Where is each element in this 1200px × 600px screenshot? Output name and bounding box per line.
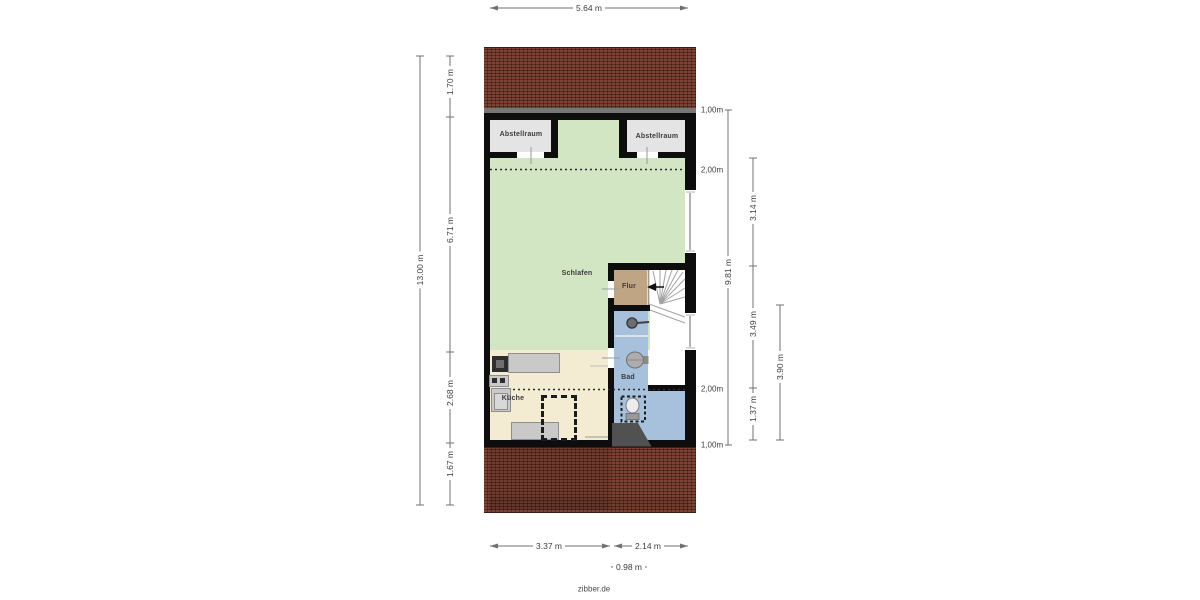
dim-left-2: 6.71 m — [445, 214, 455, 246]
floorplan-canvas: Abstellraum Abstellraum Schlafen Flur Ba… — [0, 0, 1200, 600]
dim-right-seg-1: 3.14 m — [748, 192, 758, 224]
dim-left-3: 2.68 m — [445, 377, 455, 409]
room-label-kueche: Küche — [495, 395, 531, 402]
stair-void-dashed-outline — [541, 395, 577, 441]
plan-graphics — [0, 0, 1200, 600]
height-mark-3: 2,00m — [699, 385, 725, 394]
washbasin-icon — [627, 352, 649, 368]
dim-height-total: 13.00 m — [415, 252, 425, 289]
room-label-abstellraum-right: Abstellraum — [629, 133, 685, 140]
window-glazing-lower — [686, 315, 695, 348]
height-mark-2: 2,00m — [699, 166, 725, 175]
dim-right-span: 9.81 m — [723, 256, 733, 288]
height-mark-1: 1,00m — [699, 106, 725, 115]
window-glazing-upper — [686, 192, 695, 251]
dim-bottom-small: 0.98 m — [613, 562, 645, 572]
room-label-schlafen: Schlafen — [547, 270, 607, 277]
dim-width-total: 5.64 m — [573, 3, 605, 13]
chimney-block — [612, 423, 652, 447]
dim-left-4: 1.67 m — [445, 448, 455, 480]
dim-left-1: 1.70 m — [445, 66, 455, 98]
dim-right-seg-2: 3.49 m — [748, 308, 758, 340]
stair-direction-arrow — [647, 283, 664, 291]
room-label-bad: Bad — [613, 374, 643, 381]
room-label-abstellraum-left: Abstellraum — [494, 131, 548, 138]
shower-icon — [627, 318, 649, 328]
room-label-flur: Flur — [614, 283, 644, 290]
dim-bottom-2: 2.14 m — [632, 541, 664, 551]
toilet-icon — [622, 397, 646, 422]
dim-right-outer: 3.90 m — [775, 351, 785, 383]
dim-bottom-1: 3.37 m — [533, 541, 565, 551]
height-mark-4: 1,00m — [699, 441, 725, 450]
brand-watermark: zibber.de — [578, 585, 610, 594]
dim-right-seg-3: 1.37 m — [748, 393, 758, 425]
winder-stairs-icon — [649, 270, 685, 323]
